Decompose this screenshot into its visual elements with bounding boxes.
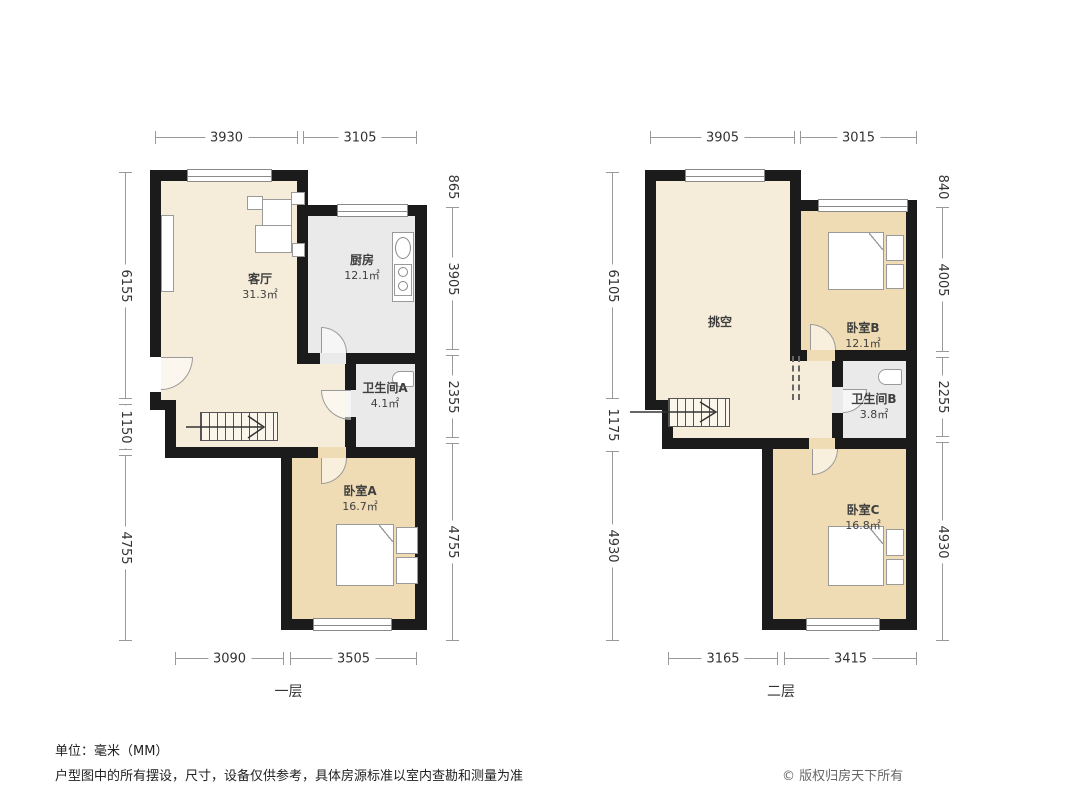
floorplan-image: 客厅 31.3㎡ 厨房 12.1㎡ 卫生间A 4.1㎡ 卧室A 16.7㎡ 39… — [0, 0, 1066, 800]
copyright: © 版权归房天下所有 — [782, 765, 903, 784]
disclaimer: 户型图中的所有摆设，尺寸，设备仅供参考，具体房源标准以室内查勘和测量为准 — [55, 765, 523, 784]
footer: 单位：毫米（MM） 户型图中的所有摆设，尺寸，设备仅供参考，具体房源标准以室内查… — [0, 0, 1066, 800]
unit-note: 单位：毫米（MM） — [55, 740, 168, 759]
